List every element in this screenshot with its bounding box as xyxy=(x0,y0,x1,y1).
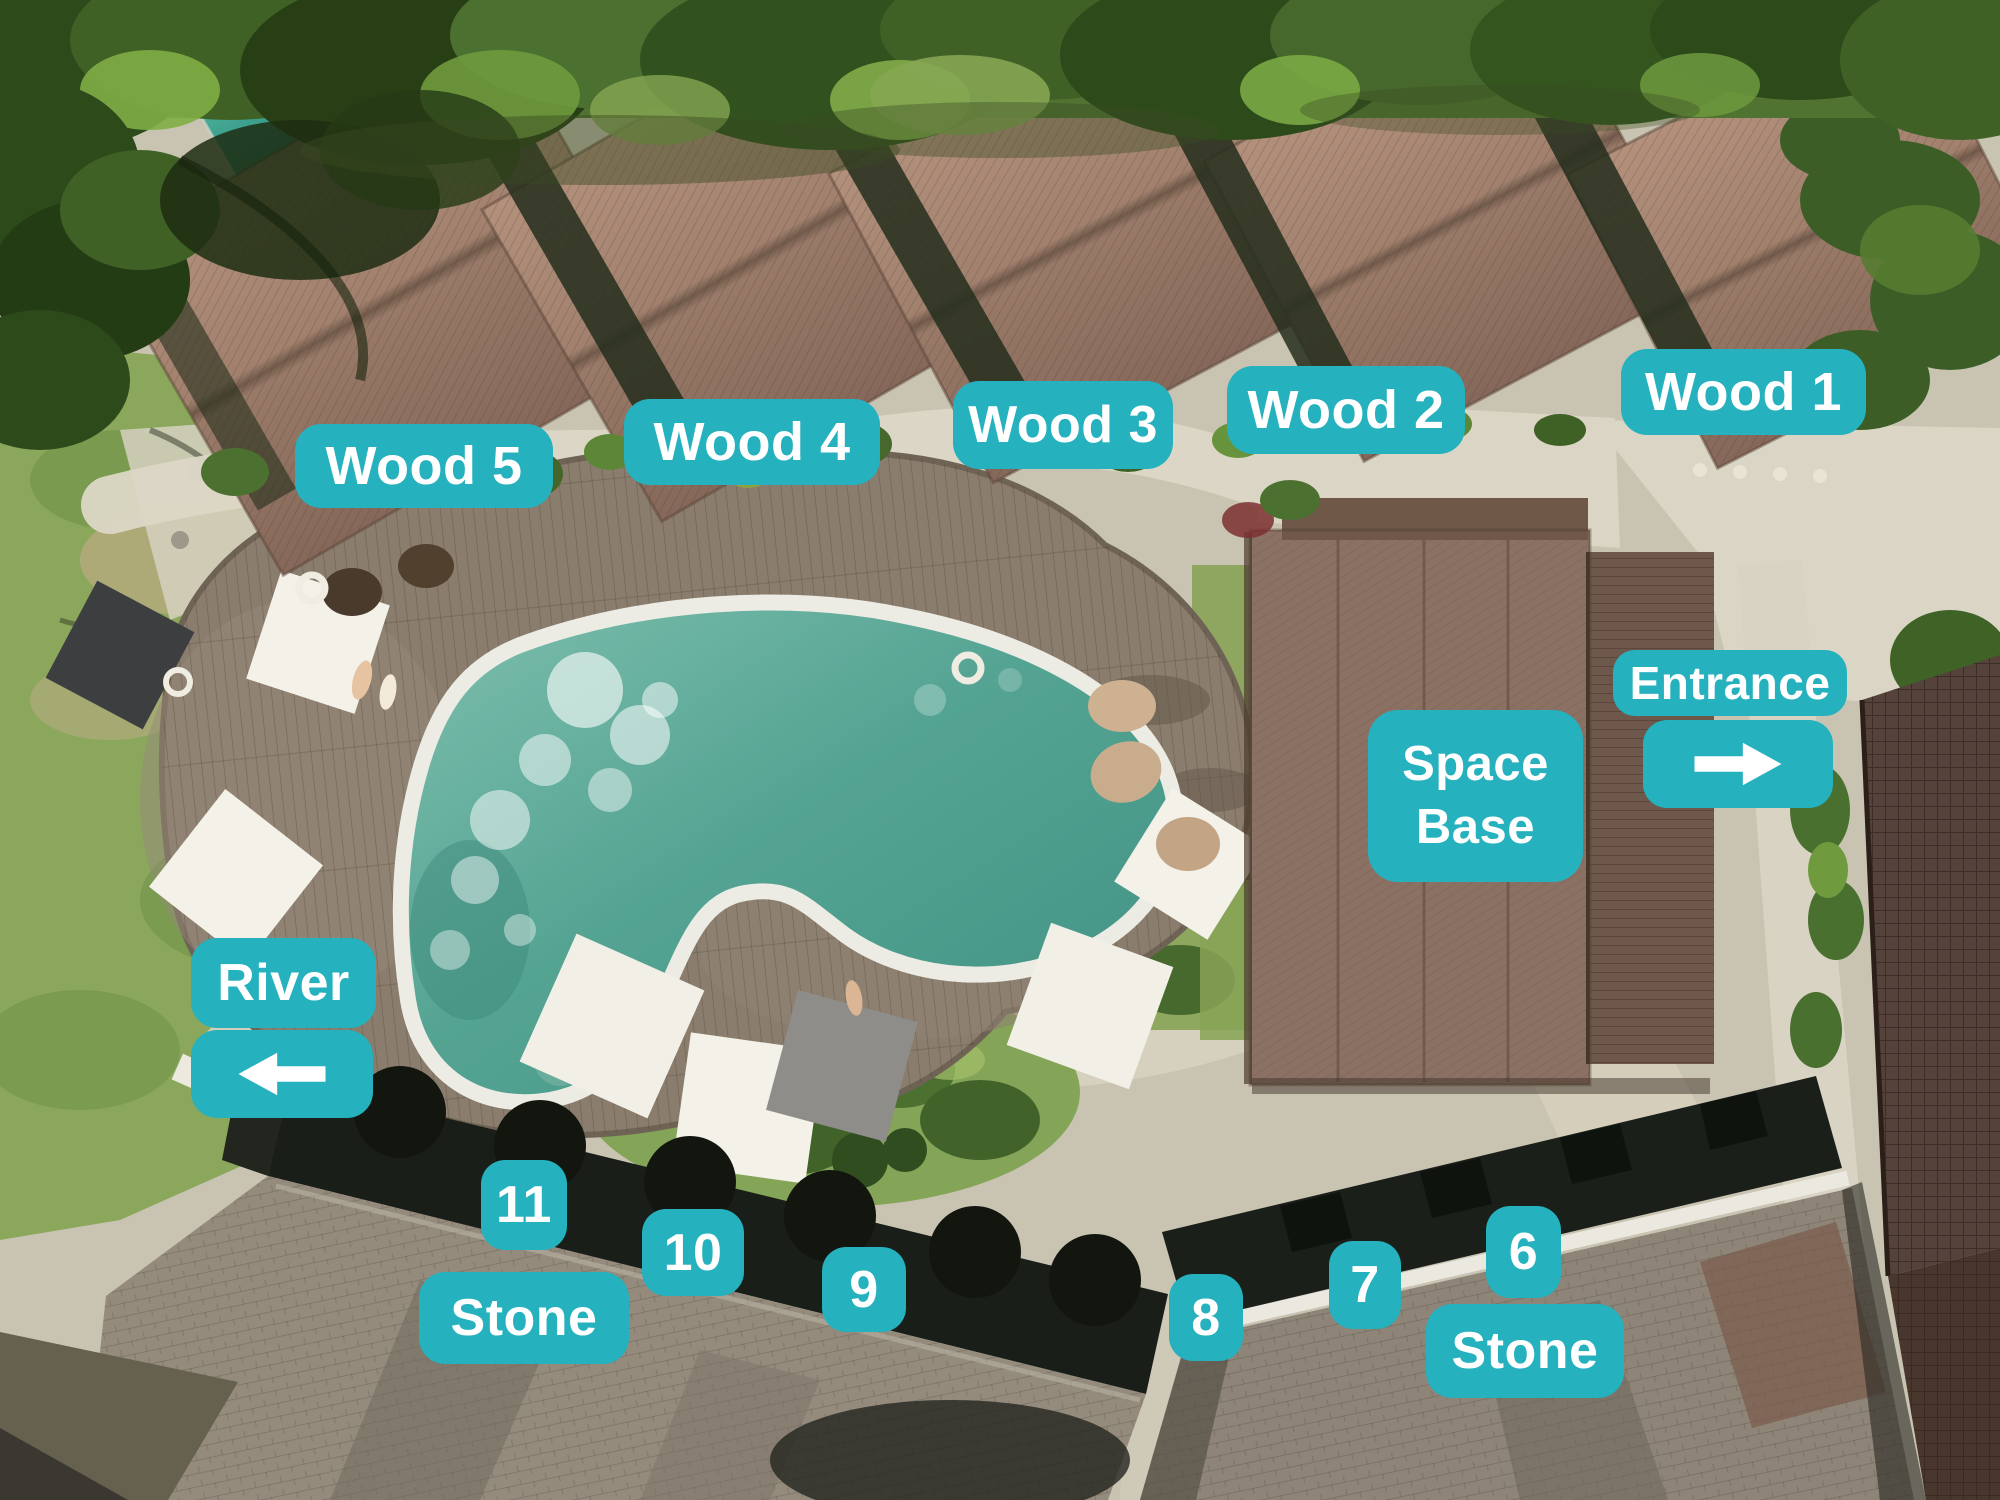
river-label: River xyxy=(191,938,376,1028)
unit-number: 9 xyxy=(849,1264,878,1316)
number-badge-8: 8 xyxy=(1169,1274,1243,1361)
number-badge-10: 10 xyxy=(642,1209,744,1296)
number-badge-9: 9 xyxy=(822,1247,906,1332)
villa-label-wood-5: Wood 5 xyxy=(295,424,553,508)
unit-number: 7 xyxy=(1350,1259,1379,1311)
unit-number: 8 xyxy=(1191,1292,1220,1344)
unit-number: 6 xyxy=(1509,1226,1538,1278)
villa-label-text: Wood 1 xyxy=(1645,365,1842,419)
villa-label-text: Wood 3 xyxy=(968,399,1158,451)
river-label-text: River xyxy=(217,957,350,1009)
entrance-direction-badge xyxy=(1643,720,1833,808)
villa-label-text: Wood 2 xyxy=(1248,383,1445,437)
resort-aerial-map: Wood 5 Wood 4 Wood 3 Wood 2 Wood 1 Space… xyxy=(0,0,2000,1500)
number-badge-7: 7 xyxy=(1329,1241,1401,1329)
villa-label-wood-4: Wood 4 xyxy=(624,399,880,485)
stone-east-text: Stone xyxy=(1452,1325,1599,1377)
unit-number: 10 xyxy=(664,1227,723,1279)
villa-label-text: Wood 5 xyxy=(326,439,523,493)
villa-label-text: Wood 4 xyxy=(654,415,851,469)
stone-west-text: Stone xyxy=(451,1292,598,1344)
area-label-stone-west: Stone xyxy=(419,1272,629,1364)
unit-number: 11 xyxy=(496,1179,552,1231)
villa-label-wood-3: Wood 3 xyxy=(953,381,1173,469)
area-label-stone-east: Stone xyxy=(1426,1304,1624,1398)
number-badge-11: 11 xyxy=(481,1160,567,1250)
space-base-line2: Base xyxy=(1416,803,1535,852)
number-badge-6: 6 xyxy=(1486,1206,1561,1298)
villa-label-wood-1: Wood 1 xyxy=(1621,349,1866,435)
area-label-space-base: Space Base xyxy=(1368,710,1583,882)
entrance-label: Entrance xyxy=(1613,650,1847,716)
space-base-line1: Space xyxy=(1402,740,1549,789)
villa-label-wood-2: Wood 2 xyxy=(1227,366,1465,454)
river-direction-badge xyxy=(191,1030,373,1118)
left-arrow-icon xyxy=(219,1045,345,1103)
entrance-label-text: Entrance xyxy=(1630,660,1831,706)
right-arrow-icon xyxy=(1675,735,1801,793)
